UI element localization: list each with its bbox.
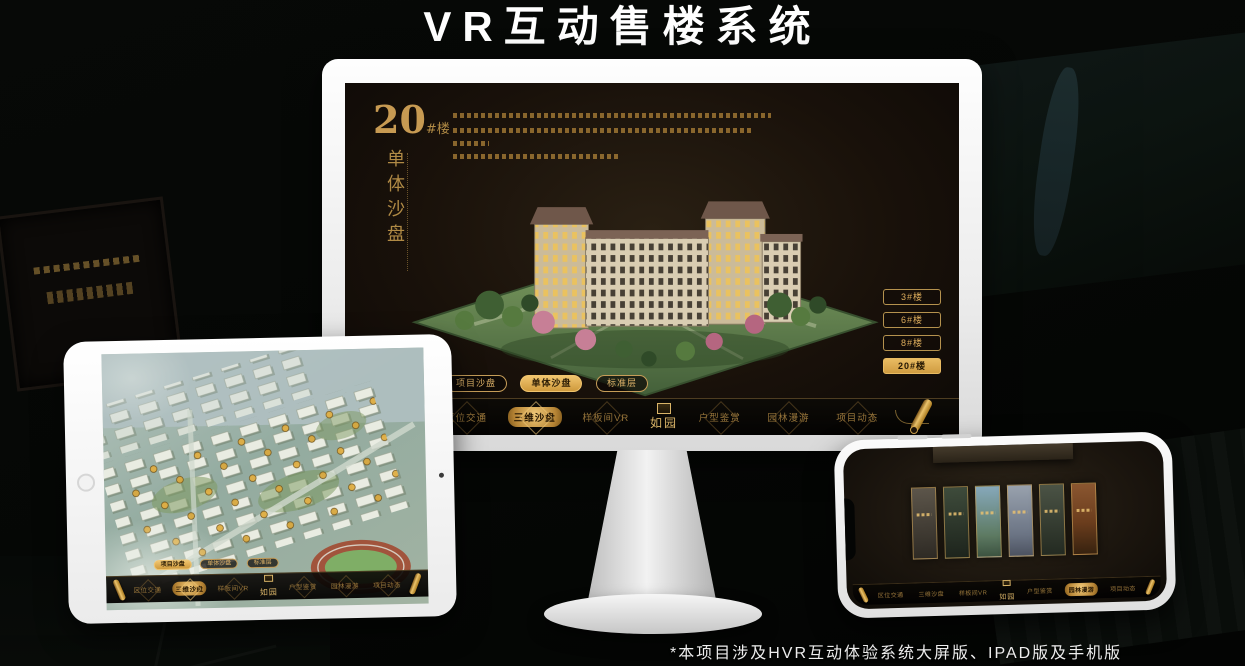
description-text-line [453,128,751,133]
floor-button-20-active[interactable]: 20#楼 [883,358,941,374]
building-model-render [387,161,907,401]
nav-item-garden-tour[interactable]: 园林漫游 [1064,582,1098,596]
nav-item-project-news[interactable]: 项目动态 [1107,582,1139,594]
nav-item-project-news[interactable]: 项目动态 [830,407,884,427]
monitor-stand-neck [588,450,716,600]
scroll-handle-icon[interactable] [899,400,943,434]
gallery-panel[interactable] [1039,483,1066,556]
brand-logo: 如园 [259,575,277,599]
brand-logo-text: 如园 [999,592,1015,600]
view-tab-group: 项目沙盘 单体沙盘 标准层 [445,373,657,392]
notch [843,498,856,560]
nav-item-unit-plans[interactable]: 户型鉴赏 [286,579,320,594]
brand-logo-text: 如园 [260,588,278,597]
phone-device: 区位交通 三维沙盘 样板间VR 如园 户型鉴赏 园林漫游 项目动态 [834,431,1177,618]
nav-item-project-news[interactable]: 项目动态 [370,577,404,592]
scroll-ornament-icon [1145,579,1156,596]
gallery-panel[interactable] [975,485,1002,558]
ipad-view-tab-group: 项目沙盘 单体沙盘 标准层 [154,551,283,572]
nav-item-garden-tour[interactable]: 园林漫游 [761,407,815,427]
background-road-line [23,645,276,666]
camera-icon [439,473,444,478]
tab-standard-floor[interactable]: 标准层 [596,375,648,392]
nav-item-showroom-vr[interactable]: 样板间VR [577,407,636,427]
brand-logo-text: 如园 [650,416,678,430]
scroll-ornament-icon [408,572,421,595]
tab-single-sandtable[interactable]: 单体沙盘 [520,375,582,392]
gallery-panel[interactable] [911,487,938,560]
ceiling-beam-render [933,443,1073,463]
description-text-line [453,113,771,118]
background-river-shape [1026,65,1086,258]
building-heading: 20#楼 [373,97,450,142]
nav-item-showroom-vr[interactable]: 样板间VR [956,586,991,598]
phone-screen: 区位交通 三维沙盘 样板间VR 如园 户型鉴赏 园林漫游 项目动态 [843,441,1167,610]
page-title: VR互动售楼系统 [0,0,1245,56]
brand-logo: 如园 [999,579,1016,602]
tab-project-sandtable[interactable]: 项目沙盘 [445,375,507,392]
building-number-suffix: #楼 [426,122,450,137]
nav-item-traffic[interactable]: 区位交通 [875,588,907,600]
gallery-panel[interactable] [1071,482,1098,555]
nav-item-unit-plans[interactable]: 户型鉴赏 [1024,584,1056,596]
description-text-line [453,154,621,159]
scroll-tip [910,426,918,434]
floor-button-3[interactable]: 3#楼 [883,289,941,305]
phone-nav-bar: 区位交通 三维沙盘 样板间VR 如园 户型鉴赏 园林漫游 项目动态 [853,576,1161,606]
ipad-screen: 项目沙盘 单体沙盘 标准层 区位交通 三维沙盘 样板间VR 如园 户型鉴赏 园林… [101,348,428,611]
tab-single-sandtable[interactable]: 单体沙盘 [200,558,238,569]
seal-icon [657,403,671,414]
nav-item-3d-sandtable[interactable]: 三维沙盘 [508,407,562,427]
page-canvas: VR互动售楼系统 20#楼 单体沙盘 [0,0,1245,666]
seal-icon [264,575,273,582]
floor-button-6[interactable]: 6#楼 [883,312,941,328]
plaque-text-line [33,255,141,275]
tab-standard-floor[interactable]: 标准层 [247,558,279,569]
scroll-ornament-icon [858,587,869,604]
volume-button [941,434,971,439]
nav-item-3d-sandtable[interactable]: 三维沙盘 [172,581,206,596]
nav-item-traffic[interactable]: 区位交通 [130,582,164,597]
volume-button [897,435,927,440]
nav-item-unit-plans[interactable]: 户型鉴赏 [693,407,747,427]
gallery-panel[interactable] [943,486,970,559]
description-text-line [453,141,489,146]
floor-button-8[interactable]: 8#楼 [883,335,941,351]
plaque-text-line [46,282,133,304]
monitor-stand-base [544,594,762,634]
footnote-text: *本项目涉及HVR互动体验系统大屏版、IPAD版及手机版 [670,639,1122,663]
home-button[interactable] [77,473,95,491]
ipad-device: 项目沙盘 单体沙盘 标准层 区位交通 三维沙盘 样板间VR 如园 户型鉴赏 园林… [63,334,457,624]
nav-item-garden-tour[interactable]: 园林漫游 [328,578,362,593]
scroll-ornament-icon [112,579,126,602]
gallery-panel[interactable] [1007,484,1034,557]
nav-item-3d-sandtable[interactable]: 三维沙盘 [915,587,947,599]
brand-logo: 如园 [650,403,678,431]
seal-icon [1003,579,1011,585]
tab-project-sandtable[interactable]: 项目沙盘 [154,559,192,570]
building-number: 20 [373,97,426,142]
nav-item-showroom-vr[interactable]: 样板间VR [214,580,251,595]
